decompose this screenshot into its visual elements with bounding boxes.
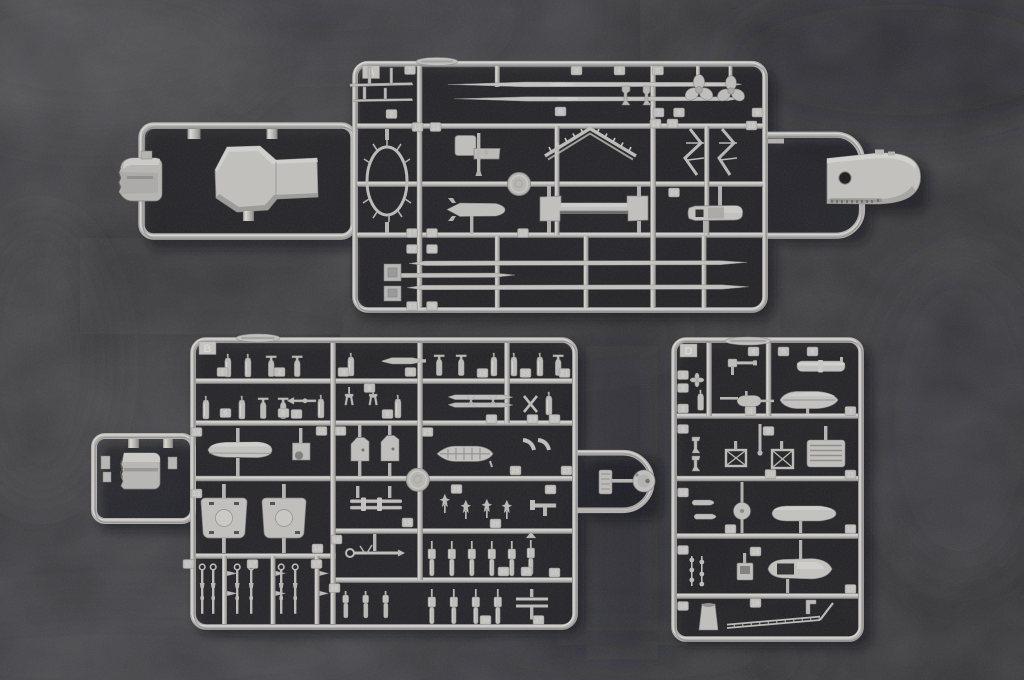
svg-text:4: 4	[749, 409, 753, 416]
svg-text:18: 18	[331, 586, 339, 593]
svg-text:13: 13	[432, 125, 440, 132]
svg-text:4: 4	[409, 370, 413, 377]
svg-text:27: 27	[563, 468, 571, 475]
svg-text:15: 15	[404, 520, 412, 527]
svg-text:3: 3	[575, 68, 579, 75]
svg-text:19: 19	[479, 371, 487, 378]
svg-text:8: 8	[681, 427, 685, 434]
svg-text:14: 14	[652, 121, 660, 128]
svg-text:16: 16	[748, 123, 756, 130]
svg-text:14: 14	[314, 546, 322, 553]
svg-text:17: 17	[313, 562, 321, 569]
svg-text:1: 1	[408, 68, 412, 75]
svg-text:19: 19	[519, 231, 527, 238]
svg-text:12: 12	[414, 125, 422, 132]
svg-text:10: 10	[767, 472, 775, 479]
svg-text:13: 13	[193, 491, 201, 498]
svg-text:1: 1	[221, 370, 225, 377]
svg-text:B: B	[204, 343, 212, 355]
svg-text:4: 4	[752, 349, 756, 356]
svg-text:6: 6	[559, 109, 563, 116]
svg-text:18: 18	[428, 231, 436, 238]
svg-text:36: 36	[482, 618, 490, 625]
svg-text:15: 15	[669, 121, 677, 128]
svg-text:17: 17	[249, 562, 257, 569]
svg-text:5: 5	[224, 411, 228, 418]
svg-text:3: 3	[681, 406, 685, 413]
svg-text:6: 6	[811, 349, 815, 356]
svg-text:7: 7	[849, 409, 853, 416]
svg-text:8: 8	[677, 110, 681, 117]
svg-text:25: 25	[424, 430, 432, 437]
svg-text:18: 18	[679, 604, 687, 611]
svg-text:28: 28	[453, 487, 461, 494]
svg-text:21: 21	[561, 371, 569, 378]
svg-text:2: 2	[681, 386, 685, 393]
svg-text:4: 4	[618, 68, 622, 75]
svg-text:26: 26	[512, 468, 520, 475]
svg-text:33: 33	[500, 569, 508, 576]
svg-text:2: 2	[278, 370, 282, 377]
svg-text:11: 11	[318, 429, 326, 436]
svg-text:2: 2	[390, 112, 394, 119]
svg-text:D: D	[685, 346, 693, 358]
svg-text:35: 35	[551, 570, 559, 577]
svg-text:29: 29	[492, 521, 500, 528]
svg-text:12: 12	[337, 429, 345, 436]
svg-text:24: 24	[551, 417, 559, 424]
svg-text:17: 17	[185, 562, 193, 569]
svg-text:17: 17	[408, 231, 416, 238]
svg-text:9: 9	[767, 429, 771, 436]
svg-text:34: 34	[523, 569, 531, 576]
svg-text:23: 23	[408, 304, 416, 311]
svg-text:3: 3	[342, 370, 346, 377]
svg-text:19: 19	[752, 601, 760, 608]
svg-text:17: 17	[847, 587, 855, 594]
svg-text:10: 10	[193, 430, 201, 437]
svg-text:14: 14	[847, 527, 855, 534]
svg-text:30: 30	[547, 487, 555, 494]
svg-text:26: 26	[428, 304, 436, 311]
svg-text:11: 11	[847, 472, 855, 479]
svg-text:9: 9	[756, 110, 760, 117]
svg-text:8: 8	[368, 386, 372, 393]
svg-text:7: 7	[657, 110, 661, 117]
svg-text:6: 6	[282, 411, 286, 418]
svg-text:22: 22	[408, 247, 416, 254]
svg-text:23: 23	[529, 417, 537, 424]
svg-text:16: 16	[752, 549, 760, 556]
svg-text:5: 5	[656, 68, 660, 75]
svg-text:20: 20	[670, 190, 678, 197]
svg-text:16: 16	[333, 537, 341, 544]
svg-text:22: 22	[488, 417, 496, 424]
svg-text:37: 37	[535, 618, 543, 625]
svg-text:15: 15	[679, 548, 687, 555]
svg-text:13: 13	[727, 527, 735, 534]
svg-text:1: 1	[681, 373, 685, 380]
svg-text:9: 9	[386, 412, 390, 419]
svg-text:7: 7	[295, 412, 299, 419]
svg-text:5: 5	[782, 349, 786, 356]
svg-text:12: 12	[679, 490, 687, 497]
svg-text:25: 25	[428, 247, 436, 254]
svg-text:20: 20	[522, 371, 530, 378]
